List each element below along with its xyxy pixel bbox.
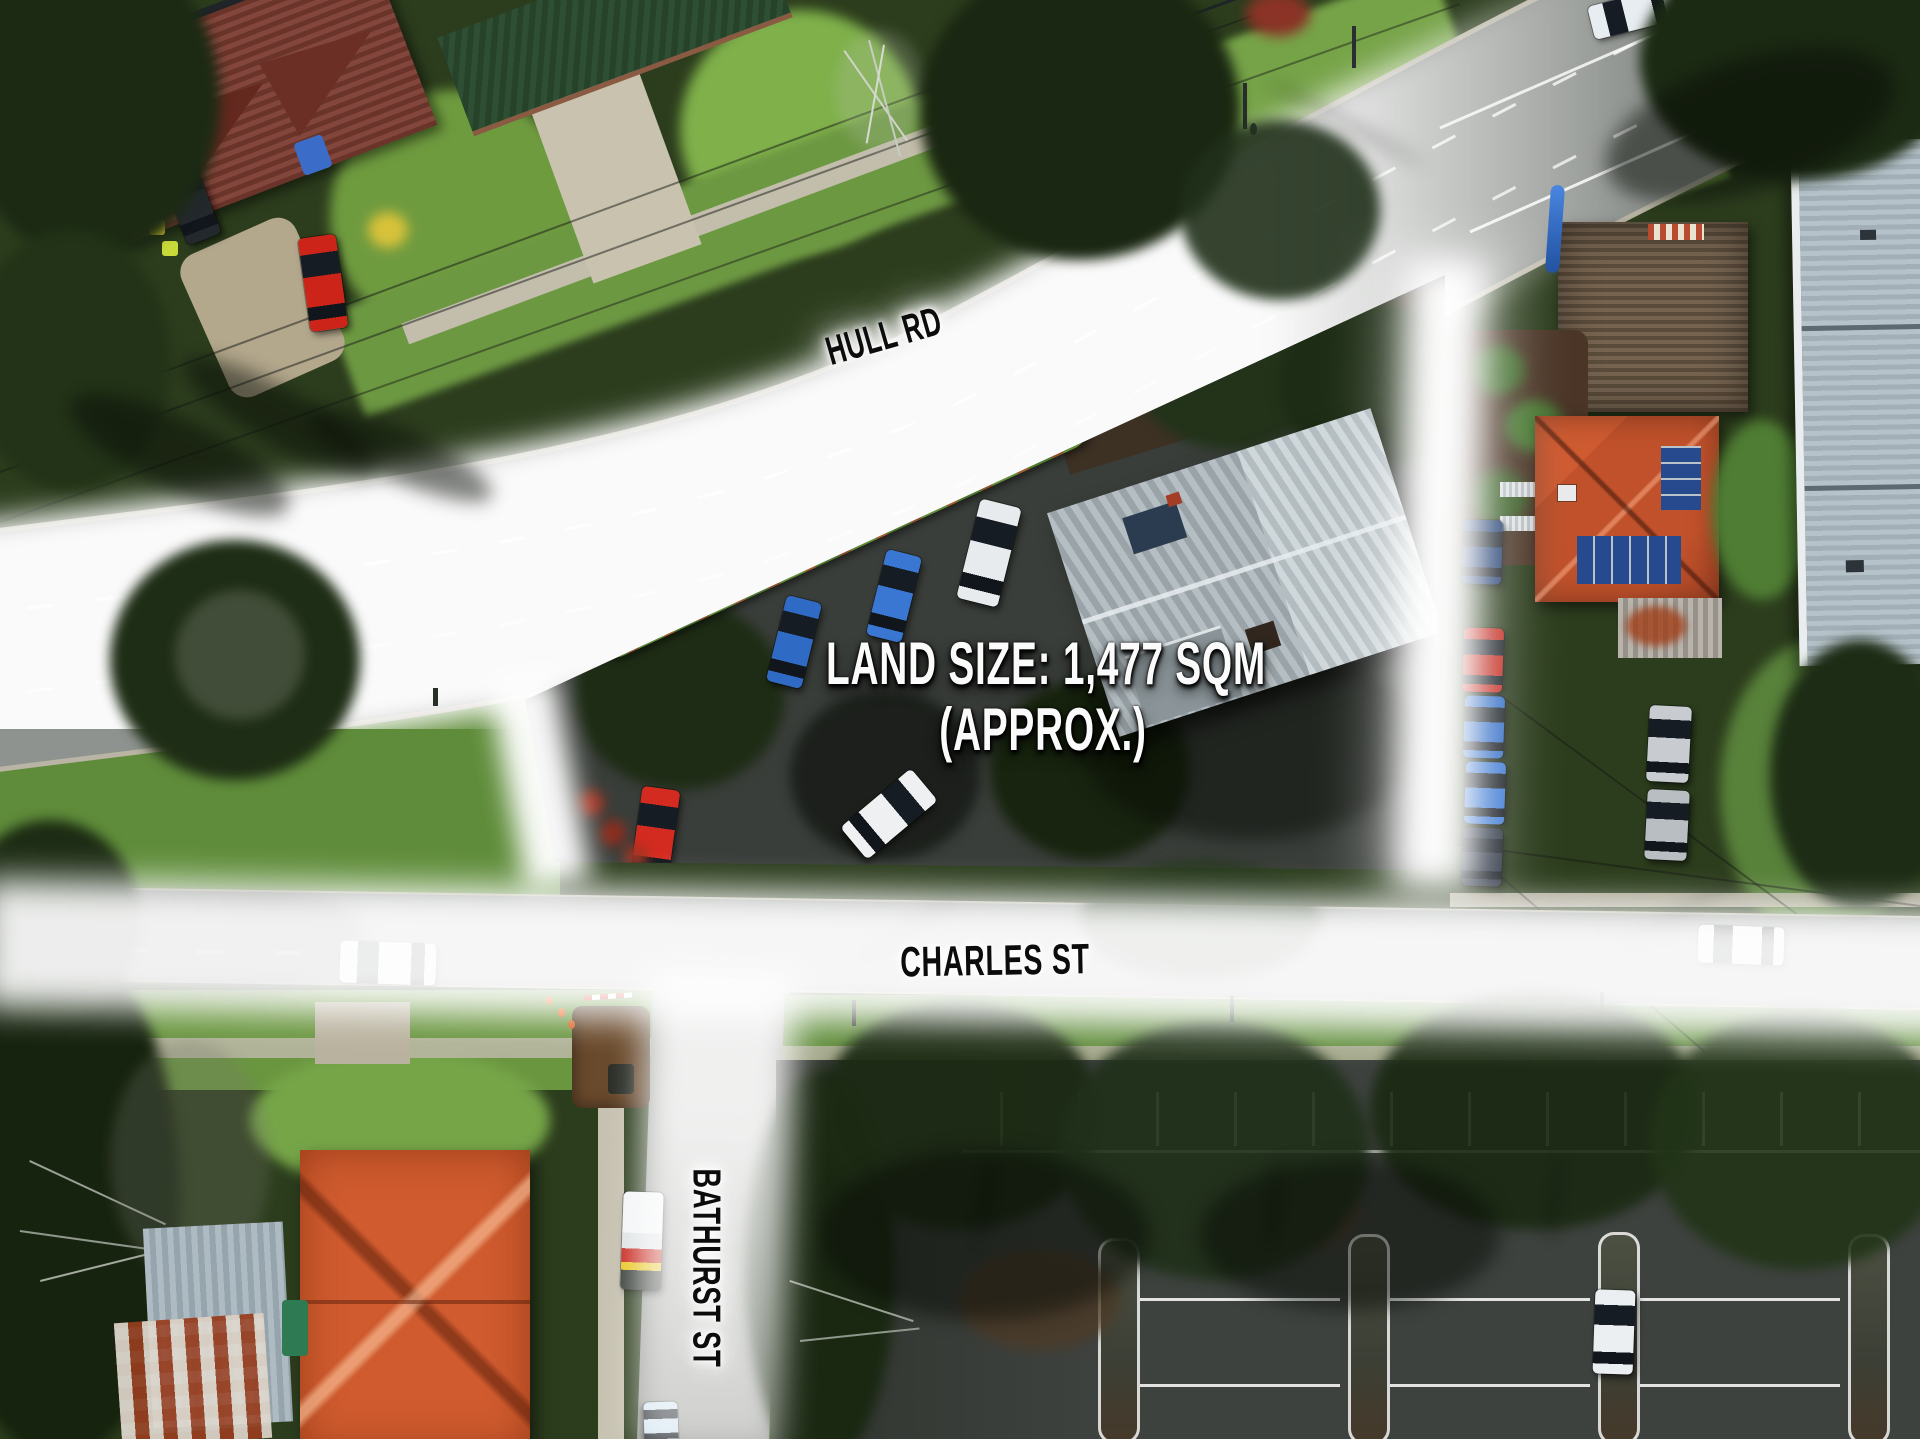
tree-shadow	[820, 1150, 1150, 1320]
tree-shadow	[1200, 1160, 1500, 1310]
roof-vent	[1860, 230, 1876, 240]
tree	[1180, 120, 1380, 300]
land-size-line1: LAND SIZE: 1,477 SQM	[826, 629, 1266, 698]
street-label-charles: CHARLES ST	[900, 936, 1090, 987]
terracotta-hip-roof	[1535, 416, 1719, 602]
red-flowering-bush	[600, 820, 626, 846]
solar-panel	[1122, 501, 1187, 554]
parking-island	[1848, 1234, 1890, 1439]
machine	[608, 1064, 634, 1094]
street-label-bathurst: BATHURST ST	[684, 1168, 729, 1367]
car	[1644, 789, 1690, 861]
rust-stain	[1626, 606, 1686, 646]
traffic-pole	[1352, 26, 1356, 68]
boundary-glow-right-aura	[1371, 257, 1513, 900]
green-tarp	[282, 1300, 308, 1356]
roof-vent	[1846, 560, 1864, 572]
flower-bed	[368, 212, 408, 248]
power-pole	[433, 688, 438, 706]
rusty-checker-roof	[114, 1313, 272, 1439]
bare-tree	[835, 30, 925, 150]
roof-valley	[300, 1300, 530, 1304]
red-flowering-bush	[578, 790, 604, 816]
roof-ridge-decoration	[1648, 224, 1704, 240]
traffic-pole	[1243, 83, 1247, 129]
roof-ridge	[300, 1150, 530, 1439]
skylight	[1557, 484, 1577, 502]
solar-panels	[1661, 446, 1701, 510]
bare-tree-gray	[175, 590, 305, 720]
yellow-bin	[162, 241, 178, 256]
aerial-photo: HULL RD CHARLES ST BATHURST ST LAND SIZE…	[0, 0, 1920, 1439]
roof-object-red	[1165, 492, 1182, 508]
apartment-roof	[1790, 139, 1920, 666]
terracotta-roof-house	[300, 1150, 530, 1439]
solar-panels	[1577, 536, 1681, 584]
roof-section-line	[1802, 324, 1920, 331]
parking-bay-line	[1140, 1384, 1340, 1387]
car	[1593, 1289, 1636, 1374]
rusty-corrugated-roof	[1618, 598, 1722, 658]
parking-bay-line	[1640, 1298, 1840, 1301]
land-size-line2: (APPROX.)	[939, 695, 1146, 764]
car	[1646, 705, 1692, 783]
parking-bay-line	[1640, 1384, 1840, 1387]
worker	[568, 1020, 575, 1029]
roof-section-line	[1804, 484, 1920, 491]
parking-bay-line	[1390, 1384, 1590, 1387]
